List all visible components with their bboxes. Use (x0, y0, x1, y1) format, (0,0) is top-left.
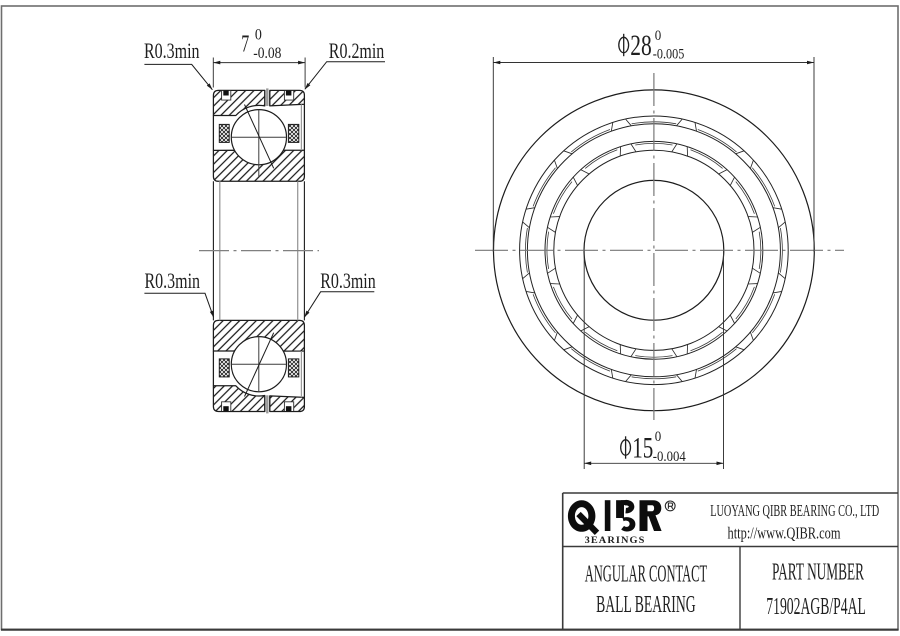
svg-text:PART NUMBER: PART NUMBER (772, 558, 864, 585)
svg-text:http://www.QIBR.com: http://www.QIBR.com (728, 524, 841, 543)
svg-text:LUOYANG QIBR BEARING CO., LTD: LUOYANG QIBR BEARING CO., LTD (710, 501, 879, 520)
svg-text:R0.3min: R0.3min (320, 268, 376, 293)
svg-text:0: 0 (655, 429, 662, 445)
svg-text:BALL BEARING: BALL BEARING (596, 591, 696, 618)
svg-text:0: 0 (255, 27, 262, 44)
svg-text:-0.08: -0.08 (253, 45, 281, 62)
svg-text:7: 7 (241, 32, 249, 58)
svg-text:0: 0 (655, 28, 662, 44)
svg-text:3EARINGS: 3EARINGS (585, 536, 646, 546)
svg-text:R0.3min: R0.3min (144, 38, 200, 63)
svg-text:-0.004: -0.004 (653, 449, 687, 465)
svg-text:ANGULAR CONTACT: ANGULAR CONTACT (585, 560, 708, 587)
svg-text:28: 28 (630, 29, 652, 62)
svg-text:-0.005: -0.005 (653, 47, 685, 63)
svg-text:R0.3min: R0.3min (145, 268, 201, 293)
svg-text:71902AGB/P4AL: 71902AGB/P4AL (766, 593, 866, 620)
svg-text:R0.2min: R0.2min (329, 38, 385, 63)
svg-text:15: 15 (632, 432, 653, 465)
